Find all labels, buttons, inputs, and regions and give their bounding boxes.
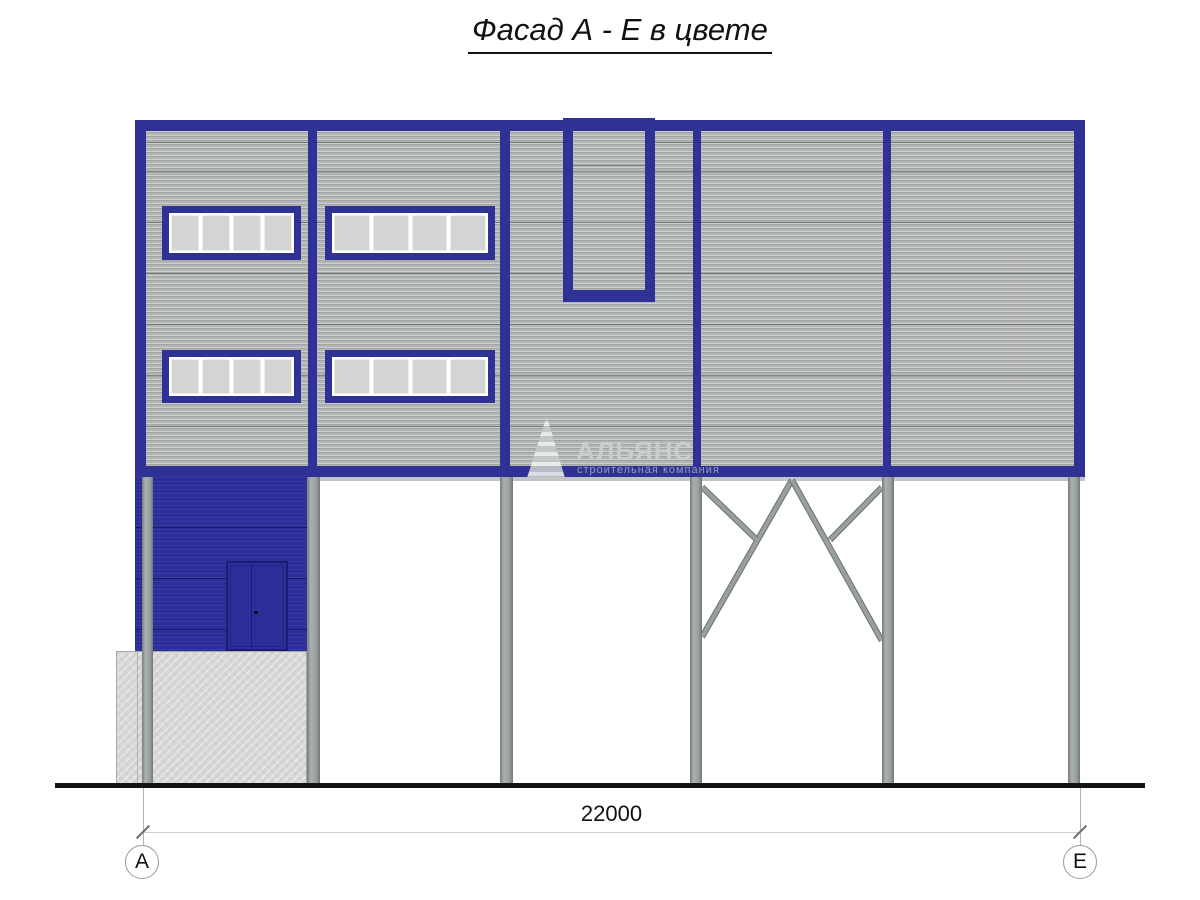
dimension-extension-line <box>1080 788 1081 846</box>
window-pane <box>412 359 448 394</box>
concrete-seam <box>137 652 138 786</box>
elevation-drawing: Фасад А - Е в цвете <box>0 0 1200 900</box>
facade-panel <box>317 131 500 466</box>
roof-notch-panel <box>573 131 645 290</box>
window-pane <box>334 359 370 394</box>
window-pane <box>171 359 199 394</box>
window <box>162 350 301 403</box>
window-pane <box>202 359 230 394</box>
window-pane <box>233 359 261 394</box>
window-pane <box>412 215 448 251</box>
facade-panel <box>701 131 883 466</box>
door-leaf-split <box>251 565 252 647</box>
window-pane <box>334 215 370 251</box>
window <box>325 350 495 403</box>
window-pane <box>202 215 230 251</box>
window-sash <box>169 213 294 253</box>
window-pane <box>264 215 292 251</box>
window-pane <box>450 215 486 251</box>
axis-marker-a: А <box>125 845 159 879</box>
window-pane <box>373 359 409 394</box>
column <box>307 477 320 786</box>
column <box>1068 477 1080 786</box>
entrance-door <box>226 561 288 651</box>
window <box>162 206 301 260</box>
axis-marker-e: Е <box>1063 845 1097 879</box>
window-sash <box>332 213 488 253</box>
door-handle-icon <box>254 611 258 614</box>
window-pane <box>450 359 486 394</box>
window-pane <box>171 215 199 251</box>
window-pane <box>233 215 261 251</box>
ground-line <box>55 783 1145 788</box>
dimension-line <box>143 832 1080 833</box>
roof-notch <box>563 118 655 302</box>
window-sash <box>332 357 488 396</box>
facade-body <box>135 120 1085 477</box>
column <box>500 477 513 786</box>
facade-panel <box>891 131 1074 466</box>
door-frame <box>230 565 284 647</box>
column <box>690 477 702 786</box>
column <box>882 477 894 786</box>
facade-panel <box>146 131 308 466</box>
window-pane <box>373 215 409 251</box>
window <box>325 206 495 260</box>
window-sash <box>169 357 294 396</box>
brace-diagonal <box>828 485 884 542</box>
window-pane <box>264 359 292 394</box>
column <box>142 477 153 786</box>
drawing-title: Фасад А - Е в цвете <box>468 12 772 54</box>
dimension-label: 22000 <box>143 801 1080 827</box>
brace-diagonal <box>700 485 759 542</box>
